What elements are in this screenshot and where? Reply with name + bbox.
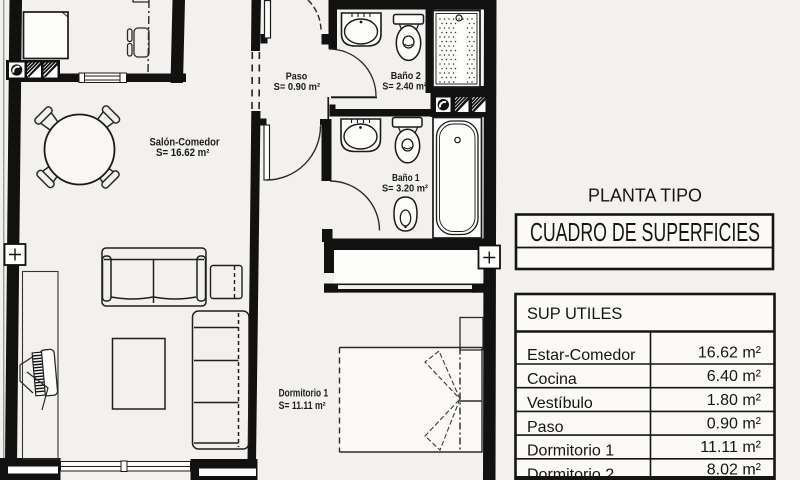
svg-text:Baño 2: Baño 2 — [391, 71, 421, 82]
svg-text:S= 16.62 m²: S= 16.62 m² — [156, 147, 210, 159]
svg-text:16.62 m²: 16.62 m² — [698, 345, 762, 362]
svg-text:Dormitorio 2: Dormitorio 2 — [527, 467, 614, 480]
svg-text:Paso: Paso — [527, 419, 564, 436]
svg-text:PLANTA TIPO: PLANTA TIPO — [588, 185, 702, 206]
svg-text:6.40 m²: 6.40 m² — [707, 368, 762, 385]
svg-text:Paso: Paso — [286, 72, 308, 83]
svg-text:0.90 m²: 0.90 m² — [707, 416, 762, 433]
svg-text:11.11 m²: 11.11 m² — [700, 439, 761, 456]
svg-text:1.80 m²: 1.80 m² — [707, 392, 762, 409]
svg-text:S= 0.90 m²: S= 0.90 m² — [274, 82, 321, 93]
svg-text:Cocina: Cocina — [527, 371, 577, 388]
svg-text:Dormitorio 1: Dormitorio 1 — [279, 388, 329, 400]
svg-text:CUADRO DE SUPERFICIES: CUADRO DE SUPERFICIES — [530, 219, 760, 247]
svg-text:8.02 m²: 8.02 m² — [707, 462, 762, 479]
svg-text:Vestíbulo: Vestíbulo — [527, 395, 593, 412]
svg-text:S= 2.40 m²: S= 2.40 m² — [382, 82, 427, 93]
svg-text:Baño 1: Baño 1 — [392, 173, 420, 184]
svg-text:Dormitorio 1: Dormitorio 1 — [527, 443, 614, 460]
svg-text:Estar-Comedor: Estar-Comedor — [527, 347, 636, 364]
svg-text:S= 3.20 m²: S= 3.20 m² — [382, 184, 429, 195]
svg-text:SUP UTILES: SUP UTILES — [527, 305, 622, 323]
svg-text:S= 11.11 m²: S= 11.11 m² — [279, 400, 326, 412]
